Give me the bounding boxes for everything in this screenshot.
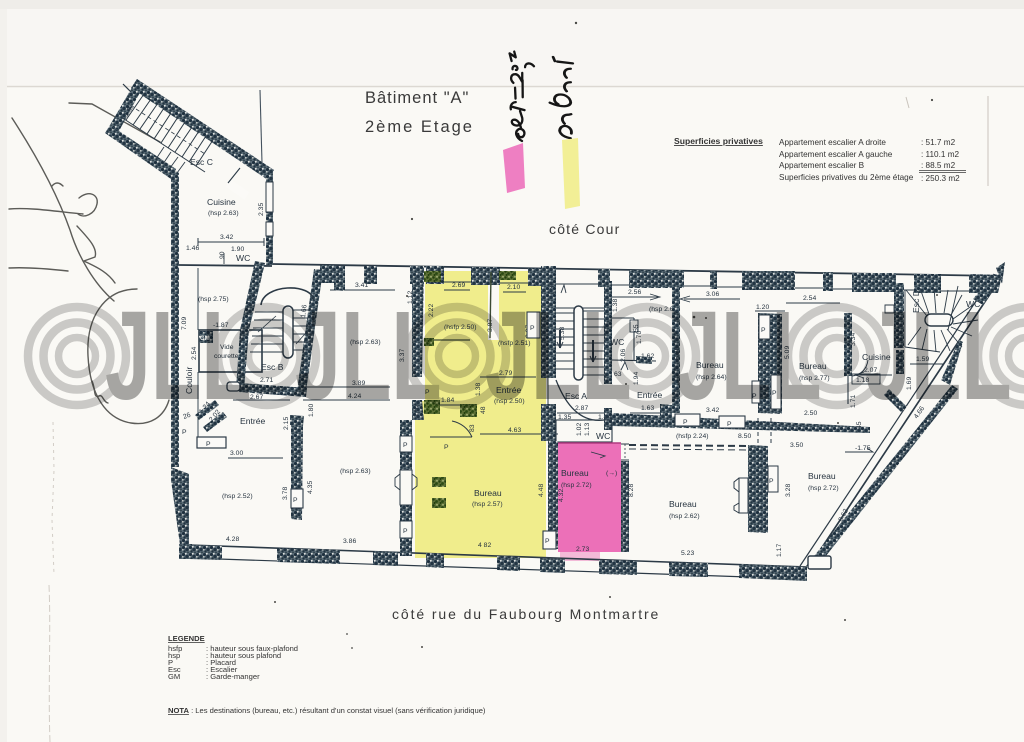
svg-text:(hsp 2.57): (hsp 2.57) <box>472 501 503 508</box>
svg-text:90: 90 <box>219 251 226 259</box>
svg-text:P: P <box>545 538 550 545</box>
svg-text:4.48: 4.48 <box>538 484 545 497</box>
svg-text:GM: GM <box>168 672 180 681</box>
svg-text:(hsp 2.63): (hsp 2.63) <box>208 210 239 217</box>
svg-text:: 110.1 m2: : 110.1 m2 <box>921 150 960 159</box>
svg-text:P: P <box>206 441 211 448</box>
svg-text:NOTA : Les destinations (burea: NOTA : Les destinations (bureau, etc.) r… <box>168 706 486 715</box>
svg-text:3.86: 3.86 <box>343 538 356 545</box>
svg-text:P: P <box>182 429 187 436</box>
svg-text:1.62: 1.62 <box>641 353 654 360</box>
svg-text:(hsp 2.52): (hsp 2.52) <box>222 493 253 500</box>
svg-text:P: P <box>403 442 408 449</box>
svg-text:2.35: 2.35 <box>258 203 265 216</box>
svg-text:P: P <box>403 528 408 535</box>
svg-text:(hsp 2.72): (hsp 2.72) <box>561 482 592 489</box>
svg-text:JLL: JLL <box>675 285 822 426</box>
svg-text:Cuisine: Cuisine <box>207 197 236 207</box>
svg-text:45: 45 <box>856 421 863 429</box>
svg-text:JLL: JLL <box>485 285 632 426</box>
svg-text:83: 83 <box>469 424 476 432</box>
svg-text:2ème Etage: 2ème Etage <box>365 118 474 136</box>
svg-text:Superficies privatives: Superficies privatives <box>674 136 763 146</box>
svg-text:: Garde-manger: : Garde-manger <box>206 672 260 681</box>
svg-text:Bâtiment "A": Bâtiment "A" <box>365 89 469 107</box>
svg-text:2.73: 2.73 <box>576 546 589 553</box>
svg-text:3.28: 3.28 <box>785 484 792 497</box>
svg-text:4.35: 4.35 <box>307 481 314 494</box>
svg-text:WC: WC <box>596 431 610 441</box>
svg-text:: 250.3 m2: : 250.3 m2 <box>921 174 960 183</box>
svg-text:P: P <box>293 497 298 504</box>
svg-text:Superficies privatives du 2ème: Superficies privatives du 2ème étage <box>779 173 914 182</box>
svg-text:2.69: 2.69 <box>452 282 465 289</box>
svg-text:(hsp 2.63): (hsp 2.63) <box>340 468 371 475</box>
svg-text:4.32: 4.32 <box>558 489 565 502</box>
svg-text:Appartement escalier A droite: Appartement escalier A droite <box>779 138 886 147</box>
svg-text:8.50: 8.50 <box>738 433 751 440</box>
svg-text:Bureau: Bureau <box>474 488 502 498</box>
svg-text:Bureau: Bureau <box>669 499 697 509</box>
svg-text:8.28: 8.28 <box>628 484 635 497</box>
svg-text:(→): (→) <box>606 470 617 477</box>
svg-text:Bureau: Bureau <box>808 471 836 481</box>
svg-text:3.00: 3.00 <box>230 450 243 457</box>
svg-text:1.46: 1.46 <box>186 245 199 252</box>
svg-text:côté Cour: côté Cour <box>549 221 621 237</box>
svg-text:P: P <box>769 478 774 485</box>
svg-text:: 88.5 m2: : 88.5 m2 <box>921 161 956 170</box>
svg-text:Esc C: Esc C <box>190 157 213 167</box>
svg-text:(hsp 2.72): (hsp 2.72) <box>808 485 839 492</box>
svg-text:4 82: 4 82 <box>478 542 491 549</box>
svg-text:4.63: 4.63 <box>508 427 521 434</box>
svg-text:5.23: 5.23 <box>681 550 694 557</box>
svg-text:Bureau: Bureau <box>561 468 589 478</box>
svg-text:: 51.7 m2: : 51.7 m2 <box>921 138 956 147</box>
svg-text:JLL: JLL <box>105 285 252 426</box>
svg-text:P: P <box>444 444 449 451</box>
svg-text:4.28: 4.28 <box>226 536 239 543</box>
svg-text:3.42: 3.42 <box>220 234 233 241</box>
svg-text:3.78: 3.78 <box>282 487 289 500</box>
svg-text:(hsp 2.62): (hsp 2.62) <box>669 513 700 520</box>
svg-text:WC: WC <box>236 253 250 263</box>
svg-text:Appartement escalier A gauche: Appartement escalier A gauche <box>779 150 893 159</box>
svg-text:3.50: 3.50 <box>790 442 803 449</box>
svg-text:JLL: JLL <box>865 285 1012 426</box>
svg-text:1.17: 1.17 <box>776 544 783 557</box>
svg-text:(hsfp 2.24): (hsfp 2.24) <box>676 433 709 440</box>
svg-text:LEGENDE: LEGENDE <box>168 634 205 643</box>
svg-text:Appartement escalier B: Appartement escalier B <box>779 161 865 170</box>
svg-text:1.90: 1.90 <box>231 246 244 253</box>
svg-text:2.15: 2.15 <box>283 417 290 430</box>
svg-text:JLL: JLL <box>295 285 442 426</box>
svg-text:côté rue du Faubourg Montmartr: côté rue du Faubourg Montmartre <box>392 606 660 622</box>
